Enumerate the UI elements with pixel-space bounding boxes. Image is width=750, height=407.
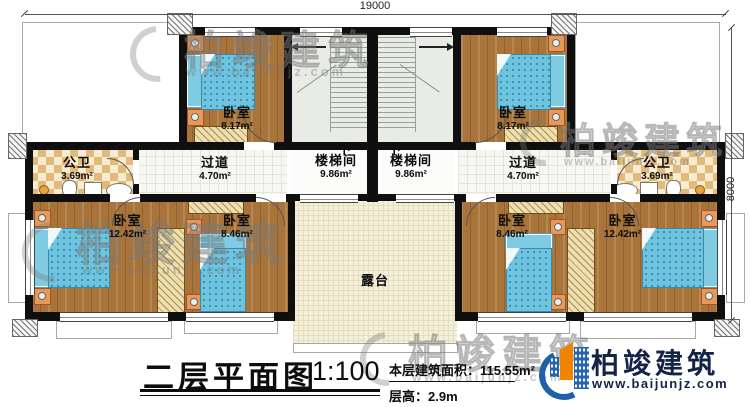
hatched-pier (714, 319, 740, 337)
room-name: 卧室 (560, 214, 685, 229)
floor-area-text: 本层建筑面积：115.55m² (389, 360, 535, 379)
bed-pillow (703, 229, 718, 287)
room-label-stairwell-left: 楼梯间 9.86m² (298, 154, 374, 180)
dimension-tick (722, 10, 729, 17)
room-name: 过道 (160, 156, 270, 171)
room-name: 卧室 (182, 106, 292, 121)
bed (506, 248, 552, 312)
window-sill-box (56, 321, 172, 339)
window (25, 220, 35, 295)
window (205, 27, 255, 37)
terrace-door-window (300, 194, 358, 203)
window-sill-box (184, 320, 278, 334)
room-area: 4.70m² (468, 171, 578, 182)
bed (497, 54, 551, 110)
room-area: 8.17m² (182, 121, 292, 132)
window (410, 27, 452, 37)
room-area: 8.17m² (458, 121, 568, 132)
wall-segment (25, 194, 293, 202)
open-area-top-right (575, 22, 720, 144)
window (186, 312, 274, 322)
info-divider-line (389, 381, 515, 382)
nightstand (701, 210, 718, 227)
room-name: 卧室 (458, 106, 568, 121)
room-area: 4.70m² (160, 171, 270, 182)
room-name: 过道 (468, 156, 578, 171)
hatched-pier (8, 133, 27, 159)
room-name: 楼梯间 (298, 154, 374, 169)
room-label-bath-left: 公卫 3.69m² (27, 156, 127, 182)
wall-segment (567, 27, 575, 150)
room-name: 卧室 (65, 214, 190, 229)
hatched-pier (551, 13, 577, 35)
window (584, 312, 692, 322)
room-area: 3.69m² (27, 171, 127, 182)
window-sill-box (580, 321, 696, 339)
window (497, 27, 547, 37)
stair-treads-right (378, 32, 416, 132)
bed (200, 248, 246, 312)
bed-pillow (34, 229, 49, 287)
window-sill-box (476, 320, 570, 334)
window (300, 27, 342, 37)
open-area-top-left (22, 22, 181, 144)
right-dimension-label: 8000 (725, 172, 737, 206)
floor-height-text: 层高：2.9m (389, 386, 458, 405)
room-area: 12.42m² (65, 229, 190, 240)
nightstand (548, 35, 565, 52)
stair-direction-arrow-right (419, 46, 447, 48)
plan-scale: 1:100 (312, 356, 380, 387)
title-underline-thick (140, 389, 380, 392)
room-label-bedroom-top-left: 卧室 8.17m² (182, 106, 292, 132)
window (717, 220, 727, 295)
room-label-bedroom-top-right: 卧室 8.17m² (458, 106, 568, 132)
company-website: www.baijunjz.com (592, 376, 728, 391)
room-name: 卧室 (457, 214, 567, 229)
hatched-pier (725, 133, 744, 159)
room-name: 卧室 (182, 214, 292, 229)
room-area: 8.46m² (182, 229, 292, 240)
door-opening (244, 142, 274, 150)
terrace-door-window (396, 194, 454, 203)
wardrobe (567, 228, 595, 316)
stair-treads-left (330, 32, 368, 132)
room-label-bedroom-bottom-right-small: 卧室 8.46m² (457, 214, 567, 240)
room-label-bedroom-bottom-left-large: 卧室 12.42m² (65, 214, 190, 240)
stair-arrowhead-left (291, 43, 298, 51)
room-area: 9.86m² (298, 169, 374, 180)
top-dimension-line (25, 14, 726, 15)
bay-window-right (726, 213, 745, 303)
room-name: 公卫 (27, 156, 127, 171)
nightstand (701, 288, 718, 305)
logo-building-icon (550, 357, 559, 377)
room-label-bedroom-bottom-right-large: 卧室 12.42m² (560, 214, 685, 240)
nightstand (550, 294, 566, 310)
top-dimension-label: 19000 (345, 0, 405, 12)
nightstand (34, 288, 51, 305)
room-label-stairwell-right: 楼梯间 9.86m² (373, 154, 449, 180)
logo-building-icon (574, 347, 589, 389)
wall-segment (457, 194, 725, 202)
room-label-bath-right: 公卫 3.69m² (607, 156, 707, 182)
room-name: 露台 (340, 274, 410, 289)
room-label-terrace: 露台 (340, 274, 410, 289)
room-label-corridor-left: 过道 4.70m² (160, 156, 270, 182)
window (478, 312, 566, 322)
room-name: 楼梯间 (373, 154, 449, 169)
stair-direction-arrow-left (298, 46, 326, 48)
window (60, 312, 168, 322)
hatched-pier (167, 13, 193, 35)
room-label-bedroom-bottom-left-small: 卧室 8.46m² (182, 214, 292, 240)
logo-building-icon (560, 342, 573, 380)
room-area: 3.69m² (607, 171, 707, 182)
room-name: 公卫 (607, 156, 707, 171)
title-underline-thin (140, 395, 380, 396)
hatched-pier (12, 319, 38, 337)
door-opening (476, 142, 506, 150)
nightstand (34, 210, 51, 227)
nightstand (187, 35, 204, 52)
bed-pillow (550, 55, 565, 107)
floor-plan-canvas: 19000 8000 (0, 0, 750, 407)
bed (201, 54, 255, 110)
room-area: 9.86m² (373, 169, 449, 180)
room-area: 12.42m² (560, 229, 685, 240)
room-area: 8.46m² (457, 229, 567, 240)
floor-terrace (293, 200, 457, 343)
room-label-corridor-right: 过道 4.70m² (468, 156, 578, 182)
door-opening (133, 160, 139, 184)
bed-pillow (187, 55, 202, 107)
wardrobe (157, 228, 185, 316)
